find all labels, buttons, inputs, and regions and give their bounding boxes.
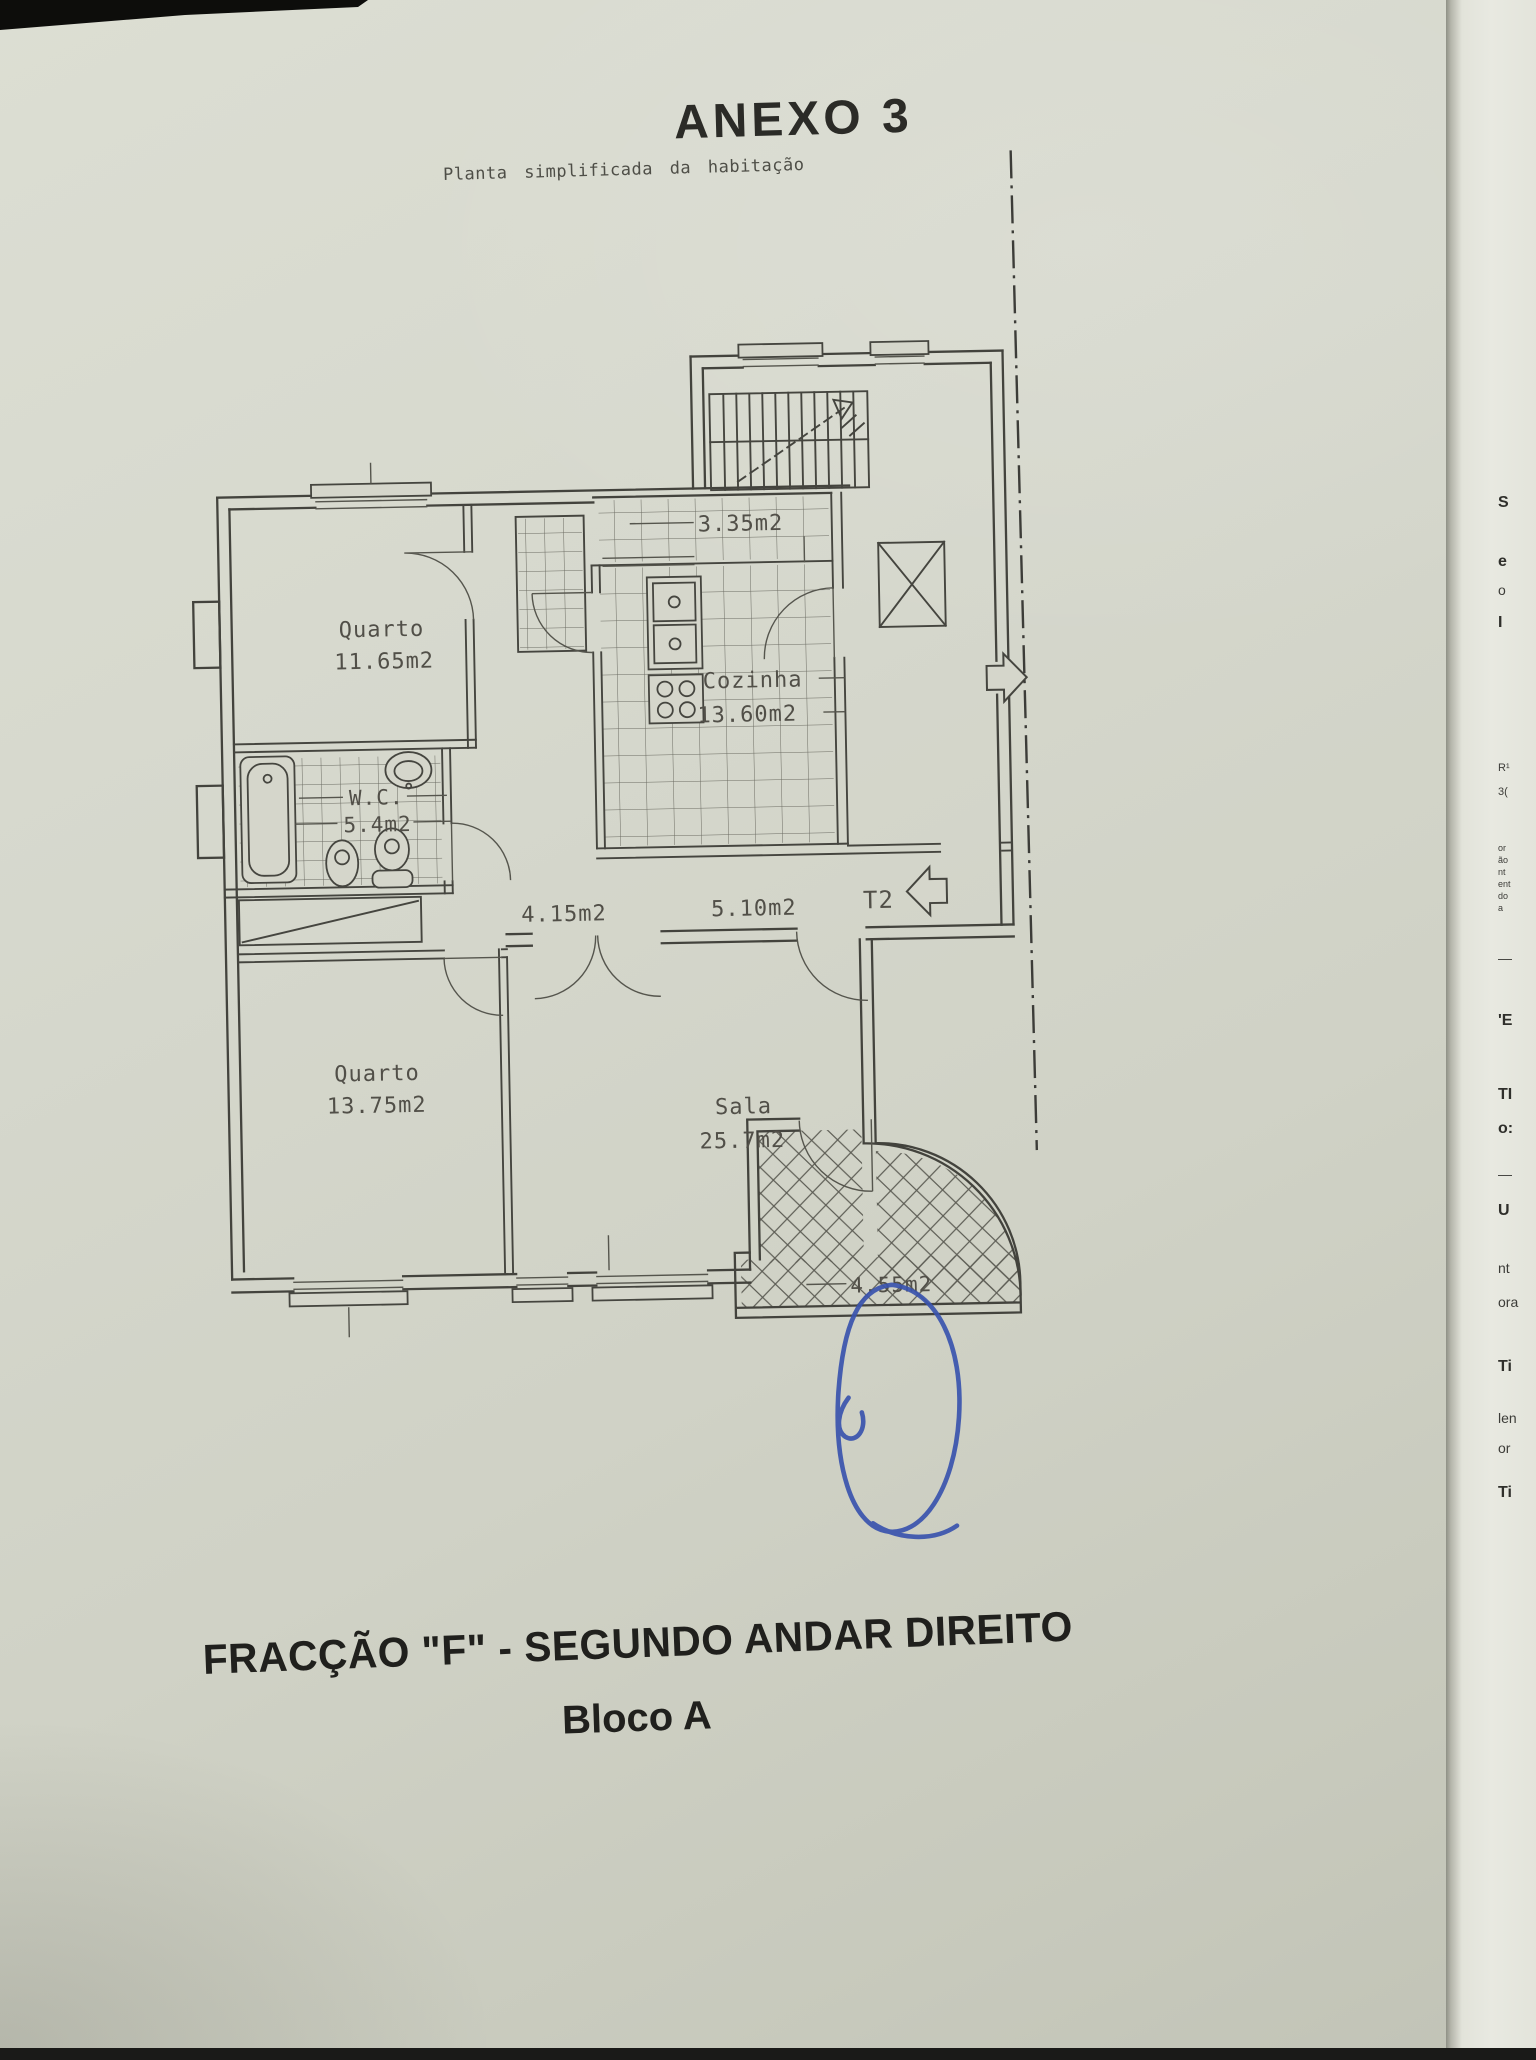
quarto2-area: 13.75m2 [327,1093,427,1120]
edge-text-fragment: I [1498,614,1536,632]
cozinha-label: Cozinha [703,667,803,694]
quarto1-area: 11.65m2 [334,649,434,676]
document-content: ANEXO 3 Planta simplificada da habitação [0,0,1452,2048]
edge-text-fragment: Ti [1498,1484,1536,1502]
edge-text-fragment: ão [1498,855,1536,865]
entry-arrow-left [906,867,947,916]
entry-hall-area: 5.10m2 [711,896,797,923]
edge-text-fragment: TI [1498,1086,1536,1104]
sala-area: 25.7m2 [699,1128,785,1155]
quarto2-label: Quarto [334,1061,420,1088]
edge-text-fragment: or [1498,1440,1536,1456]
bidet [326,840,359,887]
unit-type-label: T2 [863,886,894,915]
edge-text-fragment: Ti [1498,1358,1536,1376]
signature [835,1284,962,1539]
stove [649,674,704,723]
wc-label: W.C. [349,785,404,810]
edge-text-fragment: a [1498,903,1536,913]
unit-boundary-dashline [1011,150,1037,1150]
edge-text-fragment: U [1498,1202,1536,1220]
edge-text-fragment: 3( [1498,786,1536,798]
sala-label: Sala [715,1094,772,1120]
edge-text-fragment: len [1498,1410,1536,1426]
edge-text-fragment: — [1498,950,1536,966]
underlying-page-edge: SeoIR¹3(orãontentdoa—'ETIo:—UntoraTileno… [1446,0,1536,2048]
edge-text-fragment: nt [1498,1260,1536,1276]
edge-text-fragment: — [1498,1166,1536,1182]
edge-text-fragment: 'E [1498,1012,1536,1030]
edge-text-fragment: o [1498,582,1536,598]
edge-text-fragment: R¹ [1498,762,1536,774]
quarto1-label: Quarto [339,617,425,644]
edge-text-fragment: or [1498,843,1536,853]
stairs [709,391,869,490]
cozinha-area: 13.60m2 [697,702,797,729]
edge-text-fragment: o: [1498,1120,1536,1138]
edge-text-fragment: ent [1498,879,1536,889]
edge-text-fragment: do [1498,891,1536,901]
balcony-top-area: 3.35m2 [698,511,784,538]
kitchen-fixtures [647,576,704,723]
scanned-document-photo: ANEXO 3 Planta simplificada da habitação [0,0,1536,2048]
wc-area: 5.4m2 [343,812,412,837]
entry-arrow-right [986,653,1027,702]
block-title: Bloco A [561,1693,712,1743]
edge-text-fragment: nt [1498,867,1536,877]
edge-text-fragment: S [1498,494,1536,512]
edge-text-fragment: ora [1498,1294,1536,1310]
edge-text-fragment: e [1498,553,1536,571]
floor-plan-drawing: Quarto 11.65m2 3.35m2 Cozinha 13.60m2 W.… [0,0,1536,2060]
elevator-shaft [878,542,946,627]
hall-area: 4.15m2 [521,901,607,928]
